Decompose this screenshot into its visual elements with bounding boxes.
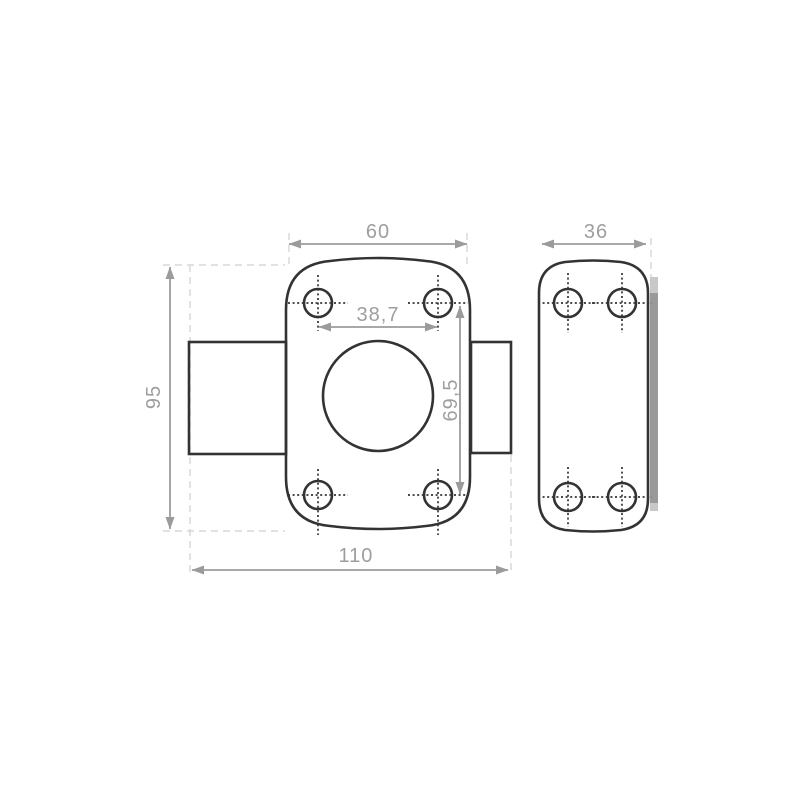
dimension-hole-pitch-horizontal: 38,7 <box>319 304 437 327</box>
cylinder-housing-outline <box>189 342 286 454</box>
dimension-body-width: 60 <box>289 221 467 244</box>
extension-lines <box>163 233 651 575</box>
dimension-body-height: 95 <box>143 267 170 529</box>
screw-hole-body-bottom-right <box>408 469 468 535</box>
lock-assembly <box>189 258 658 535</box>
screw-hole-body-top-right <box>408 275 468 331</box>
screw-hole-body-bottom-left <box>288 469 348 535</box>
dimension-value-hole-pitch-horizontal: 38,7 <box>357 304 400 326</box>
body-side-stub-outline <box>471 342 511 453</box>
screw-hole-body-top-left <box>288 275 348 331</box>
drawing-page: 60 36 95 38,7 69,5 110 <box>0 0 800 800</box>
dimension-value-hole-pitch-vertical: 69,5 <box>440 379 462 422</box>
dimension-value-plate-width: 36 <box>584 221 608 243</box>
screw-hole-plate-top-left <box>538 273 598 333</box>
strike-plate-edge-bar <box>650 293 658 503</box>
cylinder-hole <box>323 341 433 451</box>
dimension-value-overall-width: 110 <box>339 545 374 567</box>
screw-hole-plate-top-right <box>592 273 652 333</box>
dimension-value-body-height: 95 <box>143 385 165 409</box>
dimension-plate-width: 36 <box>542 221 646 244</box>
dimension-hole-pitch-vertical: 69,5 <box>440 306 462 494</box>
dimension-overall-width: 110 <box>192 545 508 570</box>
screw-hole-plate-bottom-left <box>538 467 598 527</box>
technical-drawing-canvas: 60 36 95 38,7 69,5 110 <box>0 0 800 800</box>
dimension-value-body-width: 60 <box>366 221 390 243</box>
